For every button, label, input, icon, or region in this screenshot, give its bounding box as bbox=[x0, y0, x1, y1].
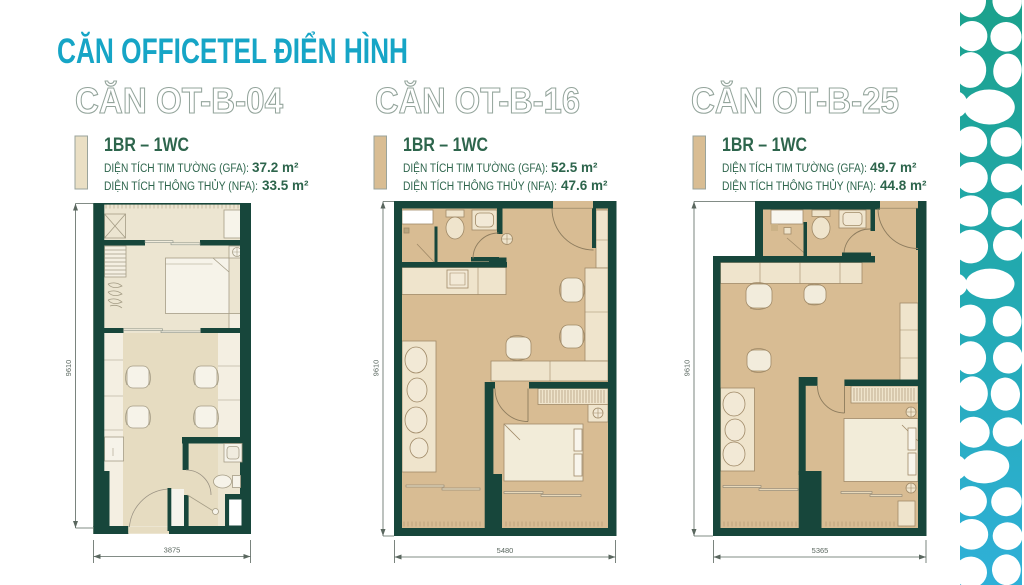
svg-text:47.6 m²: 47.6 m² bbox=[561, 178, 608, 193]
svg-text:1BR – 1WC: 1BR – 1WC bbox=[722, 134, 807, 156]
svg-text:49.7 m²: 49.7 m² bbox=[870, 160, 917, 175]
svg-text:33.5 m²: 33.5 m² bbox=[262, 178, 309, 193]
svg-text:CĂN OT-B-04: CĂN OT-B-04 bbox=[75, 80, 283, 121]
svg-text:9610: 9610 bbox=[372, 360, 381, 377]
svg-text:44.8 m²: 44.8 m² bbox=[880, 178, 927, 193]
svg-text:9610: 9610 bbox=[683, 360, 692, 377]
svg-text:1BR – 1WC: 1BR – 1WC bbox=[403, 134, 488, 156]
svg-text:52.5 m²: 52.5 m² bbox=[551, 160, 598, 175]
svg-text:DIỆN TÍCH TIM TƯỜNG (GFA):: DIỆN TÍCH TIM TƯỜNG (GFA): bbox=[403, 162, 548, 175]
svg-text:1BR – 1WC: 1BR – 1WC bbox=[104, 134, 189, 156]
svg-text:CĂN OT-B-25: CĂN OT-B-25 bbox=[691, 80, 899, 121]
svg-text:9610: 9610 bbox=[64, 360, 73, 377]
svg-text:DIỆN TÍCH TIM TƯỜNG (GFA):: DIỆN TÍCH TIM TƯỜNG (GFA): bbox=[104, 162, 249, 175]
svg-text:CĂN OFFICETEL ĐIỂN HÌNH: CĂN OFFICETEL ĐIỂN HÌNH bbox=[57, 31, 408, 71]
svg-text:5480: 5480 bbox=[497, 546, 514, 555]
svg-text:3875: 3875 bbox=[164, 546, 181, 555]
svg-text:DIỆN TÍCH THÔNG THỦY (NFA):: DIỆN TÍCH THÔNG THỦY (NFA): bbox=[403, 180, 557, 193]
svg-text:37.2 m²: 37.2 m² bbox=[252, 160, 299, 175]
svg-text:DIỆN TÍCH THÔNG THỦY (NFA):: DIỆN TÍCH THÔNG THỦY (NFA): bbox=[104, 180, 258, 193]
svg-text:DIỆN TÍCH THÔNG THỦY (NFA):: DIỆN TÍCH THÔNG THỦY (NFA): bbox=[722, 180, 876, 193]
svg-text:DIỆN TÍCH TIM TƯỜNG (GFA):: DIỆN TÍCH TIM TƯỜNG (GFA): bbox=[722, 162, 867, 175]
svg-text:CĂN OT-B-16: CĂN OT-B-16 bbox=[375, 80, 580, 121]
svg-text:5365: 5365 bbox=[812, 546, 829, 555]
